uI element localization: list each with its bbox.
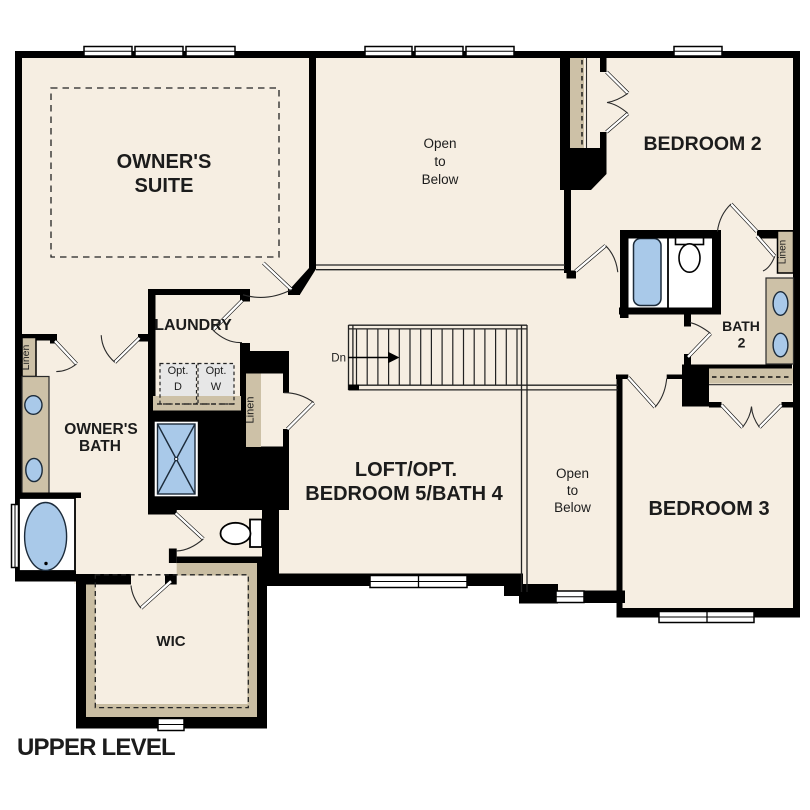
svg-text:2: 2 <box>738 335 746 351</box>
svg-text:Opt.: Opt. <box>168 365 189 377</box>
svg-text:UPPER LEVEL: UPPER LEVEL <box>17 734 175 761</box>
svg-text:D: D <box>174 381 182 393</box>
svg-text:LOFT/OPT.: LOFT/OPT. <box>355 459 457 481</box>
svg-text:OWNER'S: OWNER'S <box>117 151 212 173</box>
svg-text:Below: Below <box>422 172 459 187</box>
svg-text:BEDROOM 2: BEDROOM 2 <box>643 133 761 155</box>
svg-text:Open: Open <box>423 136 456 151</box>
svg-text:Linen: Linen <box>245 397 257 424</box>
svg-text:BEDROOM 5/BATH 4: BEDROOM 5/BATH 4 <box>305 483 503 505</box>
svg-text:W: W <box>211 381 222 393</box>
svg-text:BEDROOM 3: BEDROOM 3 <box>648 498 769 520</box>
svg-text:OWNER'S: OWNER'S <box>64 421 137 438</box>
svg-text:Open: Open <box>556 466 589 481</box>
svg-text:Linen: Linen <box>778 240 789 264</box>
svg-text:WIC: WIC <box>156 633 185 650</box>
svg-text:BATH: BATH <box>722 318 760 334</box>
svg-text:Opt.: Opt. <box>206 365 227 377</box>
svg-text:SUITE: SUITE <box>135 175 194 197</box>
svg-text:BATH: BATH <box>79 438 121 455</box>
svg-text:LAUNDRY: LAUNDRY <box>154 317 232 334</box>
svg-text:Dn: Dn <box>331 353 346 365</box>
svg-text:to: to <box>434 154 445 169</box>
svg-text:Linen: Linen <box>20 345 32 371</box>
svg-text:to: to <box>567 483 578 498</box>
svg-text:Below: Below <box>554 500 591 515</box>
